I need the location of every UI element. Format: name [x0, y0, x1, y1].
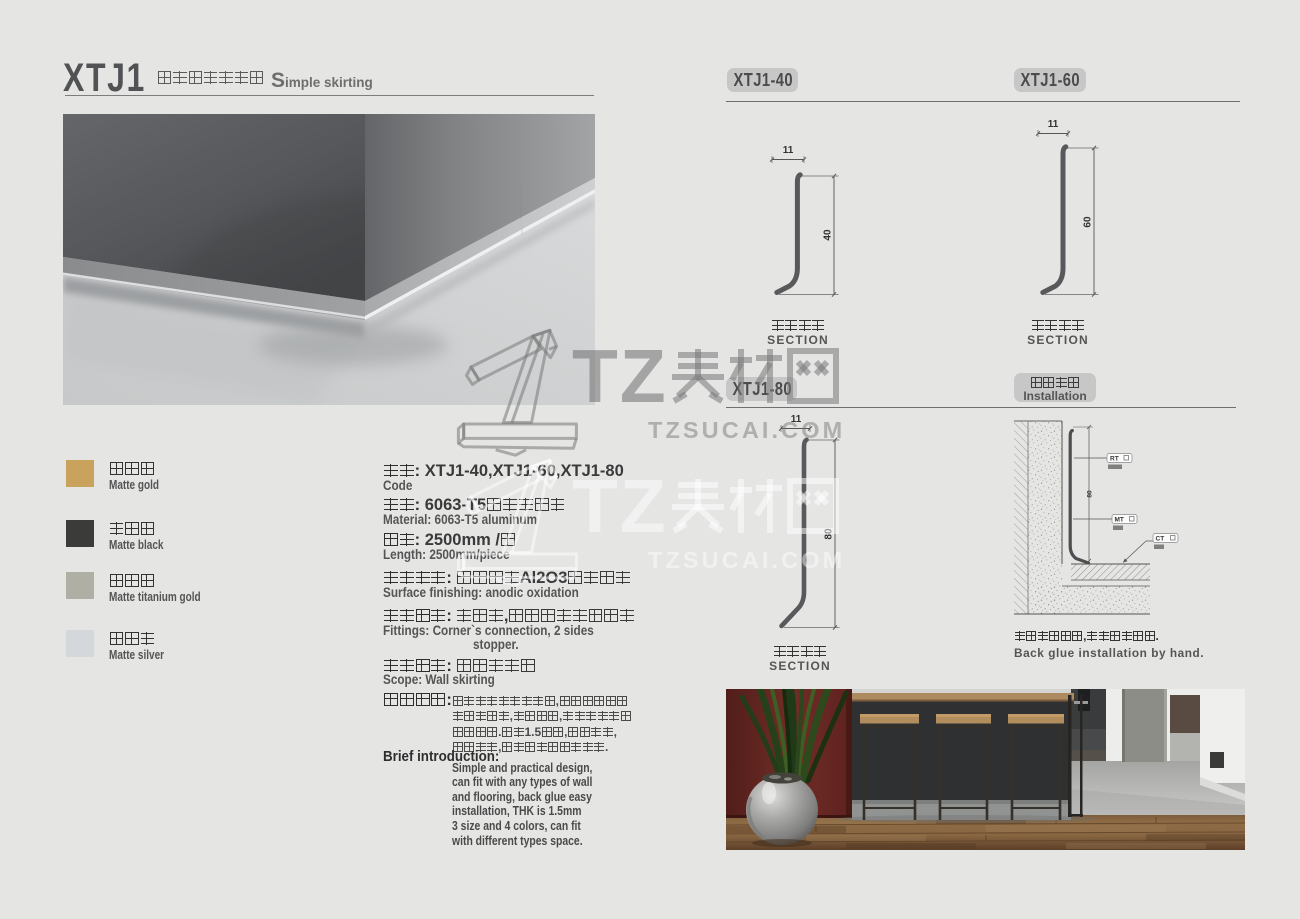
- svg-text:60: 60: [1083, 216, 1094, 228]
- svg-text:80: 80: [824, 528, 835, 540]
- svg-text:CT: CT: [1156, 536, 1165, 543]
- svg-text:80: 80: [1087, 490, 1094, 498]
- svg-text:RT: RT: [1110, 456, 1119, 463]
- svg-text:11: 11: [791, 414, 802, 425]
- svg-text:MT: MT: [1115, 517, 1124, 524]
- svg-text:11: 11: [783, 145, 794, 156]
- svg-text:11: 11: [1048, 119, 1059, 130]
- svg-text:40: 40: [823, 229, 834, 241]
